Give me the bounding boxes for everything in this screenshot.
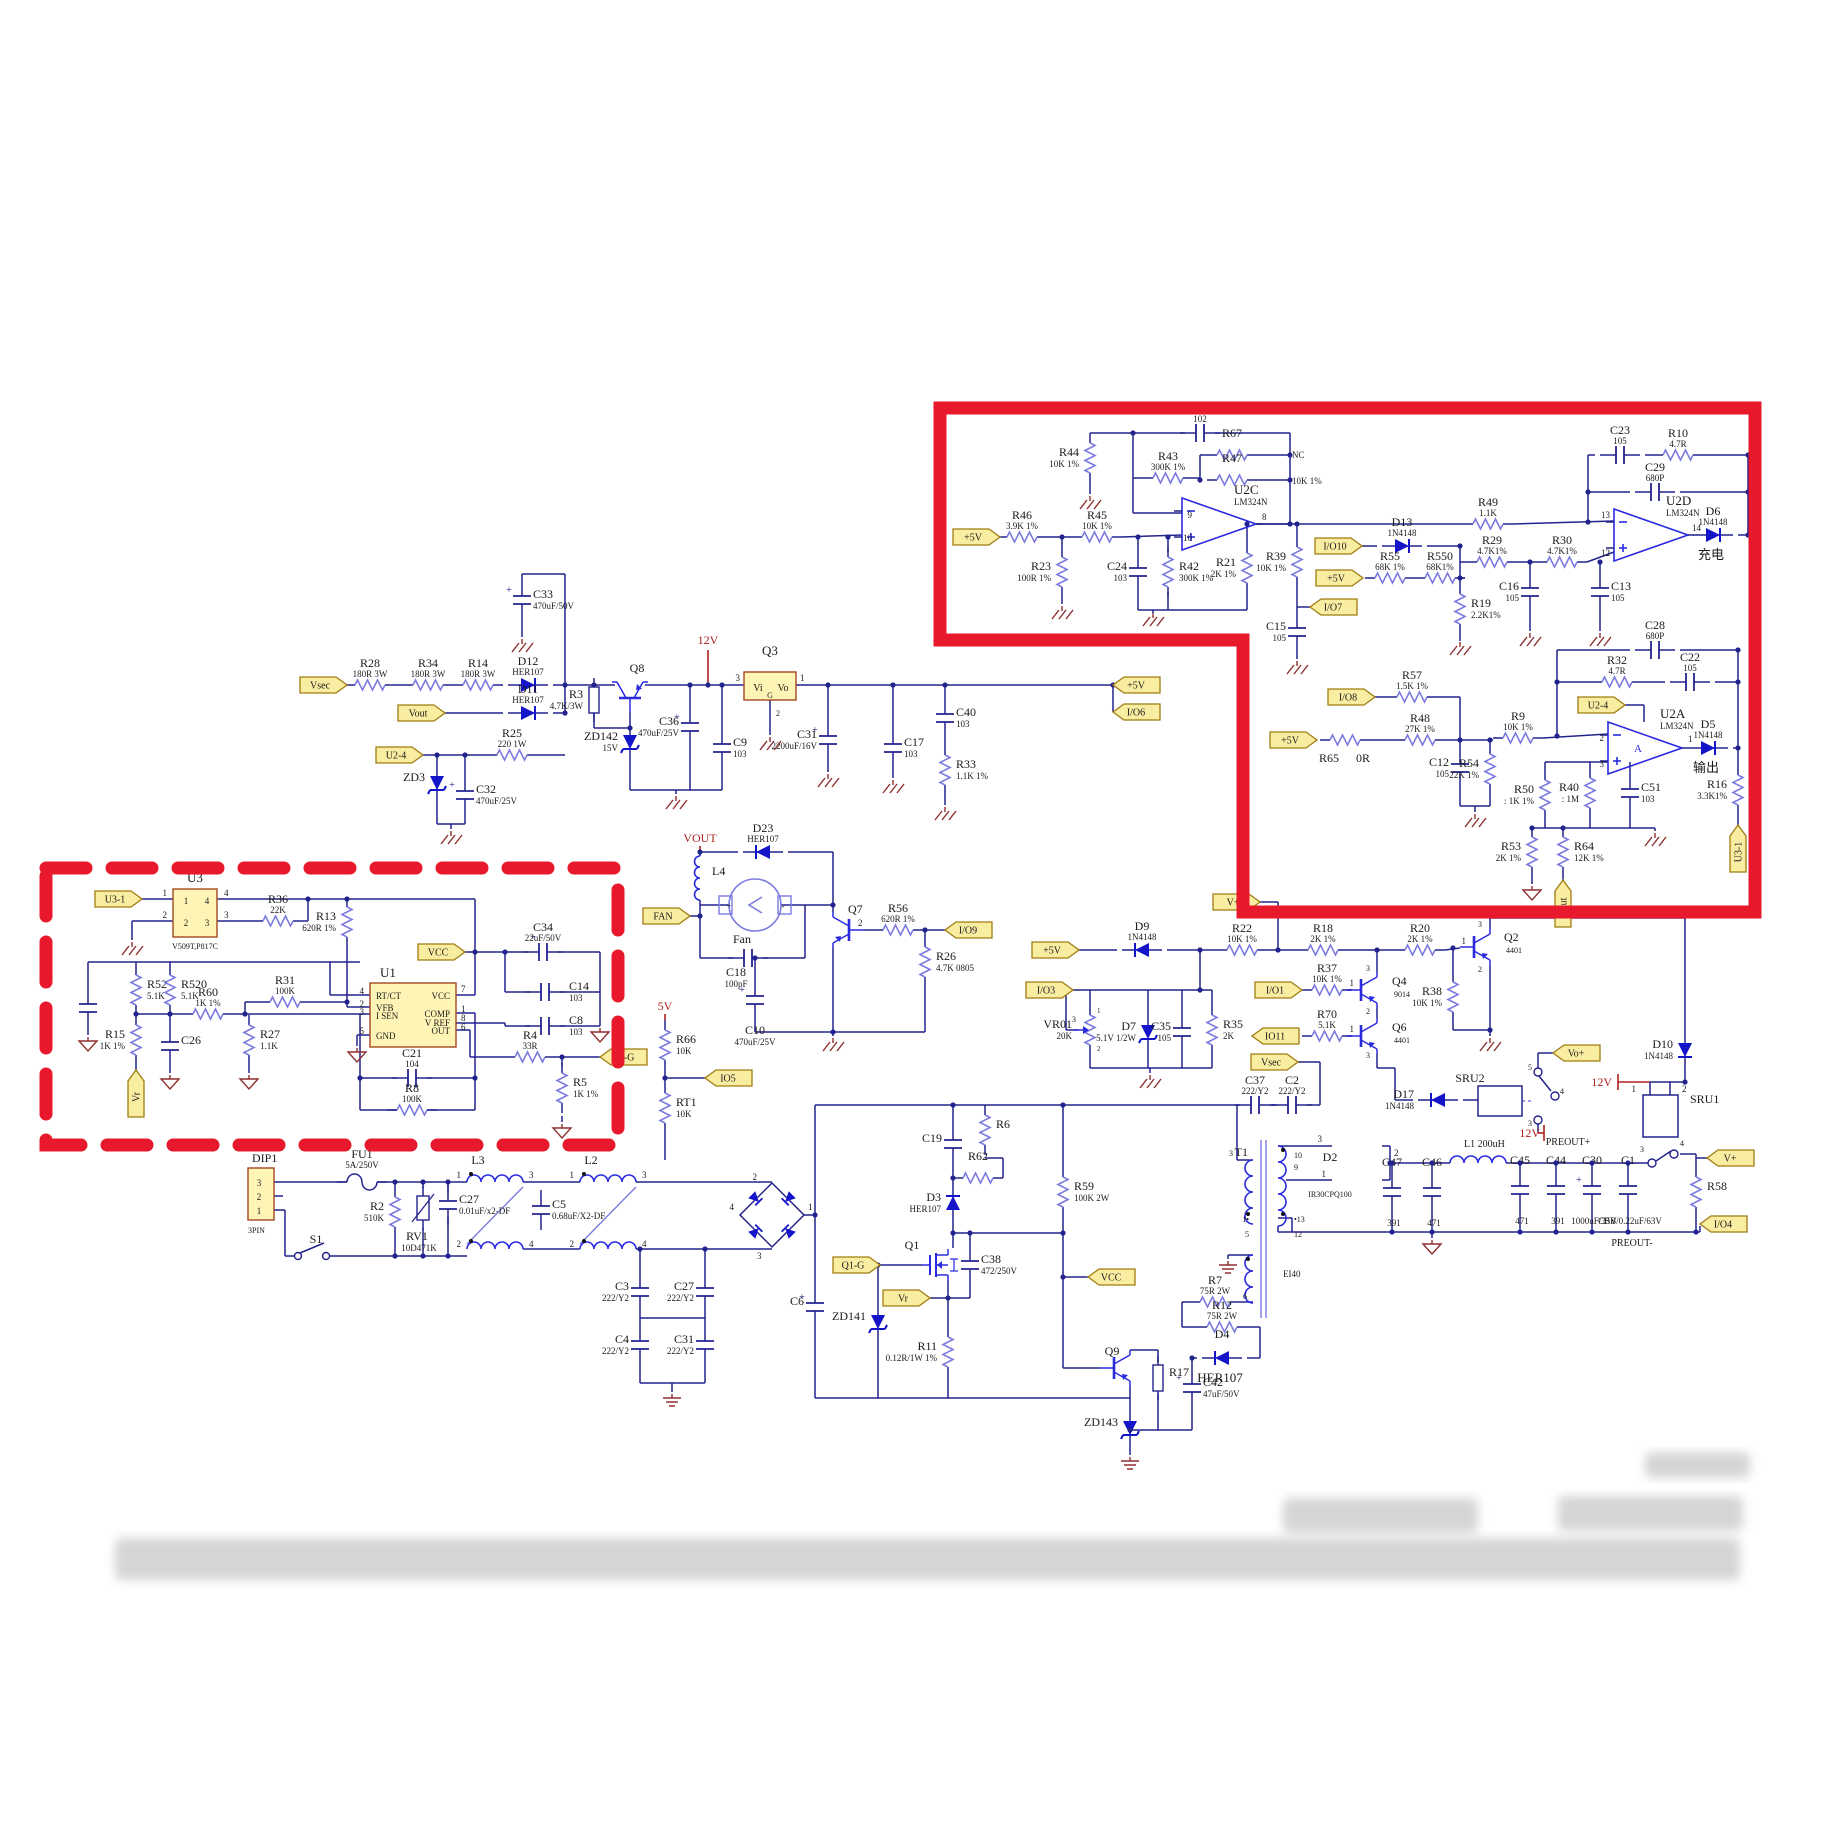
component-C36: +C36470uF/25V <box>638 707 699 747</box>
label: R49 <box>1478 495 1498 509</box>
label: 2K 1% <box>1310 934 1336 944</box>
contact-pin <box>1534 1116 1542 1124</box>
label: R59 <box>1074 1179 1094 1193</box>
label: D4 <box>1215 1327 1230 1341</box>
label: Q4 <box>1392 974 1407 988</box>
component-C38: C38472/250V <box>961 1245 1018 1285</box>
label: EI40 <box>1283 1269 1301 1279</box>
component-ZD141: ZD141 <box>832 1302 887 1342</box>
component-C22: C22105 <box>1670 650 1710 691</box>
label: 103 <box>569 993 583 1003</box>
label: 2200uF/16V <box>771 741 817 751</box>
label: C5 <box>552 1197 566 1211</box>
label: 4 <box>1680 1139 1684 1148</box>
label: 100R 1% <box>1017 573 1051 583</box>
label: U2-4 <box>386 751 407 762</box>
label: + <box>726 901 731 911</box>
label: R53 <box>1501 839 1521 853</box>
component-R4: R433R <box>505 1028 555 1062</box>
label: 1 <box>570 1170 575 1180</box>
inductor-coil <box>467 1175 523 1182</box>
schematic-canvas: R4410K 1%R463.9K 1%R4510K 1%R43300K 1%R6… <box>0 0 1825 1825</box>
component-C2: C2222/Y2 <box>1272 1073 1312 1114</box>
component-C27: C270.01uF/x2-DF <box>439 1185 510 1225</box>
component-C16: C16105 <box>1499 572 1539 612</box>
label: R47 <box>1222 451 1242 465</box>
label: 5.1K <box>1318 1020 1336 1030</box>
label: FAN <box>653 912 672 923</box>
component-C32: +C32470uF/25V <box>449 775 517 815</box>
label: C21 <box>402 1046 422 1060</box>
label: R35 <box>1223 1017 1243 1031</box>
component-C51: C51103 <box>1621 773 1661 813</box>
component-R32: R324.7R <box>1592 653 1642 687</box>
label: R27 <box>260 1027 280 1041</box>
label: 2 <box>753 1172 758 1182</box>
power-label-12V: 12V <box>1519 1126 1540 1140</box>
net-flag-+5V: +5V <box>1032 942 1079 958</box>
net-flag-I/O7: I/O7 <box>1310 599 1357 615</box>
component-C24: C24103 <box>1107 552 1147 592</box>
label: R62 <box>968 1149 988 1163</box>
label: R65 <box>1319 751 1339 765</box>
label: D23 <box>753 821 774 835</box>
label: + <box>1176 1373 1182 1384</box>
label: C4 <box>615 1332 629 1346</box>
label: 2.2K1% <box>1471 610 1501 620</box>
component-transistor <box>612 682 648 712</box>
label: 12K 1% <box>1574 853 1604 863</box>
contact-pin <box>1534 1068 1542 1076</box>
label: 4 <box>529 1239 534 1249</box>
label: 0.01uF/x2-DF <box>459 1206 510 1216</box>
label: R40 <box>1559 780 1579 794</box>
label: 105 <box>1683 663 1697 673</box>
label: D9 <box>1135 919 1150 933</box>
label: 68K1% <box>1426 562 1454 572</box>
label: 0.12R/1W 1% <box>886 1353 938 1363</box>
label: 10 <box>1294 1151 1302 1160</box>
label: C27 <box>674 1279 694 1293</box>
label: VCC <box>428 948 449 959</box>
label: R70 <box>1317 1007 1337 1021</box>
component-transistor <box>1460 929 1490 965</box>
component-R25: R25220 1W <box>487 726 537 760</box>
component-R28: R28180R 3W <box>345 656 395 690</box>
label: D5 <box>1701 717 1716 731</box>
label: T1 <box>1235 1145 1248 1159</box>
net-flag-+5V: +5V <box>1316 570 1363 586</box>
label: C34 <box>533 920 553 934</box>
label: 0.68uF/X2-DF <box>552 1211 605 1221</box>
label: D11 <box>518 682 538 696</box>
component-C19: C19 <box>922 1124 962 1164</box>
label: I SEN <box>376 1011 399 1021</box>
label: 10 <box>1183 533 1193 543</box>
label: 470uF/25V <box>734 1037 776 1047</box>
label: HER107 <box>1197 1370 1243 1385</box>
label: D13 <box>1392 515 1413 529</box>
net-flag-I/O8: I/O8 <box>1328 689 1375 705</box>
component-R35: R352K <box>1207 1005 1243 1055</box>
label: C16 <box>1499 579 1519 593</box>
component-R17: R17 <box>1153 1356 1189 1400</box>
label: Vr <box>898 1294 909 1305</box>
label: 300K 1% <box>1151 462 1186 472</box>
component-R14: R14180R 3W <box>453 656 503 690</box>
label: +5V <box>964 533 983 544</box>
label: 5 <box>1528 1063 1532 1072</box>
component-R9: R910K 1% <box>1493 709 1543 743</box>
label: L4 <box>712 864 725 878</box>
component-R46: R463.9K 1% <box>997 508 1047 542</box>
label: R42 <box>1179 559 1199 573</box>
bridge-rectifier <box>740 1183 804 1247</box>
label: Q6 <box>1392 1020 1407 1034</box>
label: ZD142 <box>584 729 618 743</box>
component-R19: R192.2K1% <box>1455 584 1501 634</box>
label: 105 <box>1273 633 1287 643</box>
component-R53: R532K 1% <box>1496 827 1537 877</box>
label: 22K <box>270 905 286 915</box>
component-R21: R212K 1% <box>1211 543 1252 593</box>
component-R33: R331.1K 1% <box>940 745 988 795</box>
power-label-12V: 12V <box>1591 1075 1612 1089</box>
label: C33 <box>533 587 553 601</box>
label: R2 <box>370 1199 384 1213</box>
label: 3 <box>224 910 229 920</box>
component-FU1: FU15A/250V <box>337 1147 387 1190</box>
label: CBB/0.22uF/63V <box>1598 1216 1662 1226</box>
label: 103 <box>904 749 918 759</box>
label: 4 <box>360 986 365 996</box>
label: 470uF/25V <box>476 796 518 806</box>
net-flag-IO11: IO11 <box>1252 1028 1299 1044</box>
net-flag-Vo+: Vo+ <box>1553 1045 1600 1061</box>
label: 5.1V 1/2W <box>1096 1033 1136 1043</box>
inductor-coil <box>580 1175 636 1182</box>
label: HER107 <box>512 667 544 677</box>
label: D3 <box>926 1190 941 1204</box>
component-R47: R47 <box>1207 451 1257 485</box>
label: Vout <box>409 709 428 720</box>
component-RV1: RV110D471K <box>401 1186 437 1253</box>
label: 1 <box>1097 1007 1101 1015</box>
label: 47uF/50V <box>1203 1389 1240 1399</box>
net-flag-U3-1: U3-1 <box>1730 825 1746 872</box>
label: 33R <box>522 1041 537 1051</box>
label: I/O10 <box>1323 542 1346 553</box>
net-flag-I/O3: I/O3 <box>1026 982 1073 998</box>
net-flag-Vout: Vout <box>398 705 445 721</box>
label: C18 <box>726 965 746 979</box>
label: 222/Y2 <box>602 1346 629 1356</box>
label: R23 <box>1031 559 1051 573</box>
label: 103 <box>956 719 970 729</box>
label: 100K 2W <box>1074 1193 1110 1203</box>
label: VCC <box>431 991 450 1001</box>
component-C31: +C312200uF/16V <box>771 720 837 760</box>
label: C6 <box>790 1294 804 1308</box>
label: GND <box>376 1031 396 1041</box>
label: Vo+ <box>1568 1049 1585 1060</box>
label: 27K 1% <box>1405 724 1435 734</box>
label: 103 <box>1114 573 1128 583</box>
label: R16 <box>1707 777 1727 791</box>
label: Fan <box>733 932 751 946</box>
power-label-VOUT: VOUT <box>683 831 717 845</box>
label: 3 <box>529 1170 534 1180</box>
label: 180R 3W <box>461 669 496 679</box>
component-R37: R3710K 1% <box>1302 961 1352 995</box>
contact-pin <box>1551 1092 1559 1100</box>
label: R45 <box>1087 508 1107 522</box>
net-flag-I/O9: I/O9 <box>945 922 992 938</box>
label: DIP1 <box>252 1151 277 1165</box>
label: 7 <box>461 984 466 994</box>
label: 22uF/50V <box>525 933 562 943</box>
component-R55: R5568K 1% <box>1365 549 1415 583</box>
label: 3 <box>360 1007 365 1017</box>
label: R4 <box>523 1028 537 1042</box>
label: V509T,P817C <box>172 942 218 951</box>
label: 10K <box>676 1046 692 1056</box>
label: 222/Y2 <box>667 1293 694 1303</box>
label: 12V <box>1519 1126 1540 1140</box>
component-RT1: RT110K <box>660 1083 697 1133</box>
component-R62: R62 <box>953 1149 1003 1183</box>
label: 1 <box>257 1206 262 1216</box>
component-D4: D4HER107 <box>1197 1327 1243 1385</box>
label: 10D471K <box>401 1243 437 1253</box>
label: R50 <box>1514 782 1534 796</box>
label: 9014 <box>1394 990 1410 999</box>
component-R40: R40: 1M <box>1559 768 1595 818</box>
net-flag-IO5: IO5 <box>705 1070 752 1086</box>
label: 8 <box>1262 512 1267 522</box>
label: R43 <box>1158 449 1178 463</box>
label: 输出 <box>1693 760 1719 775</box>
component-R66: R6610K <box>660 1020 696 1070</box>
component-D7: D75.1V 1/2W <box>1096 1012 1157 1052</box>
label: C27 <box>459 1192 479 1206</box>
label: 5 <box>1245 1230 1249 1239</box>
label: R44 <box>1059 445 1079 459</box>
component-R43: R43300K 1% <box>1143 449 1193 483</box>
component-R2: R2510K <box>364 1187 400 1237</box>
blur-overlays <box>115 1452 1750 1580</box>
label: 105 <box>1613 436 1627 446</box>
label: Q7 <box>848 902 863 916</box>
label: 2 <box>257 1192 262 1202</box>
net-flag-Q1-G: Q1-G <box>833 1257 880 1273</box>
net-flag-+5V: +5V <box>1113 677 1160 693</box>
label: 12V <box>698 633 719 647</box>
label: 10K 1% <box>1412 998 1442 1008</box>
label: 3 <box>1600 759 1605 769</box>
label: 471 <box>1427 1218 1441 1228</box>
label: U3-1 <box>1734 842 1745 863</box>
label: 1.5K 1% <box>1396 681 1428 691</box>
component-R38: R3810K 1% <box>1412 972 1458 1022</box>
component-R57: R571.5K 1% <box>1387 668 1437 702</box>
power-label-5V: 5V <box>658 999 673 1013</box>
label: 3 <box>205 918 210 928</box>
label: LM324N <box>1234 497 1268 507</box>
label: 510K <box>364 1213 385 1223</box>
label: I/O8 <box>1339 693 1357 704</box>
label: C24 <box>1107 559 1127 573</box>
label: R5 <box>573 1075 587 1089</box>
net-flag-Vsec: Vsec <box>300 677 347 693</box>
label: 4 <box>224 888 229 898</box>
label: I/O9 <box>959 926 977 937</box>
label: D7 <box>1121 1019 1136 1033</box>
label: 10K 1% <box>1503 722 1533 732</box>
label: R550 <box>1427 549 1453 563</box>
label: R54 <box>1459 756 1479 770</box>
label: 13 <box>1601 510 1611 520</box>
label: 5.1K <box>147 991 165 1001</box>
label: 1K 1% <box>100 1041 126 1051</box>
label: 充电 <box>1698 547 1724 562</box>
label: 180R 3W <box>353 669 388 679</box>
label: C36 <box>659 714 679 728</box>
label: R48 <box>1410 711 1430 725</box>
label: 9 <box>1294 1163 1298 1172</box>
label: R3 <box>569 687 583 701</box>
label: RT/CT <box>376 991 401 1001</box>
label: 1 <box>808 1202 813 1212</box>
label: R8 <box>405 1081 419 1095</box>
label: 2 <box>1366 1007 1370 1016</box>
component-C23: C23105 <box>1600 423 1640 464</box>
label: R32 <box>1607 653 1627 667</box>
label: 10K <box>676 1109 692 1119</box>
net-flag-U2-4: U2-4 <box>1578 697 1625 713</box>
label: LM324N <box>1660 721 1694 731</box>
label: R20 <box>1410 921 1430 935</box>
label: 1 <box>184 896 189 906</box>
label: R15 <box>105 1027 125 1041</box>
label: ZD3 <box>403 770 425 784</box>
component-R31: R31100K <box>260 973 310 1007</box>
label: 222/Y2 <box>1279 1086 1306 1096</box>
label: 2 <box>163 910 168 920</box>
label: RT1 <box>676 1095 697 1109</box>
component-R49: R491.1K <box>1463 495 1513 529</box>
label: 3 <box>1318 1134 1323 1144</box>
label: R28 <box>360 656 380 670</box>
label: 300K 1% <box>1179 573 1214 583</box>
label: VOUT <box>683 831 717 845</box>
component-C13: C13105 <box>1591 572 1631 612</box>
label: 2K 1% <box>1211 569 1237 579</box>
component-R26: R264.7K 0805 <box>920 937 974 987</box>
label: 12V <box>1591 1075 1612 1089</box>
label: 222/Y2 <box>602 1293 629 1303</box>
component-R20: R202K 1% <box>1395 921 1445 955</box>
label: R31 <box>275 973 295 987</box>
label: U1 <box>380 965 396 980</box>
label: 1 <box>800 673 805 683</box>
component-C35: C35105 <box>1151 1012 1191 1052</box>
label: I/O6 <box>1127 708 1145 719</box>
label: C35 <box>1151 1019 1171 1033</box>
component-C10: +C10470uF/25V <box>734 980 776 1047</box>
component-C18: C18100pF <box>724 949 768 989</box>
label: 6 <box>461 1022 466 1032</box>
label: 680P <box>1646 631 1665 641</box>
label: 3PIN <box>248 1226 265 1235</box>
label: 75R 2W <box>1207 1311 1238 1321</box>
label: 1N4148 <box>1644 1051 1673 1061</box>
label: 3 <box>1366 1051 1370 1060</box>
label: 1K 1% <box>573 1089 599 1099</box>
net-flag-I/O1: I/O1 <box>1255 982 1302 998</box>
label: IO5 <box>720 1074 736 1085</box>
label: 1N4148 <box>1385 1101 1414 1111</box>
label: U2D <box>1666 493 1691 508</box>
label: HER107 <box>910 1204 942 1214</box>
label: C2 <box>1285 1073 1299 1087</box>
label: Q2 <box>1504 930 1519 944</box>
label: 0R <box>1356 751 1370 765</box>
label: 1K 1% <box>195 998 221 1008</box>
label: 103 <box>569 1027 583 1037</box>
component-R18: R182K 1% <box>1298 921 1348 955</box>
label: 1.1K 1% <box>956 771 988 781</box>
label: 4.7K1% <box>1477 546 1507 556</box>
label: R18 <box>1313 921 1333 935</box>
label: C10 <box>745 1023 765 1037</box>
label: R39 <box>1266 549 1286 563</box>
label: R52 <box>147 977 167 991</box>
label: C8 <box>569 1013 583 1027</box>
component-C5: C50.68uF/X2-DF <box>532 1190 605 1230</box>
label: C26 <box>181 1033 201 1047</box>
label: D6 <box>1706 504 1721 518</box>
net-flag-FAN: FAN <box>643 908 690 924</box>
schematic-svg: R4410K 1%R463.9K 1%R4510K 1%R43300K 1%R6… <box>0 0 1825 1825</box>
label: 2 <box>184 918 189 928</box>
component-R58: R58 <box>1691 1167 1727 1217</box>
label: 2K 1% <box>1407 934 1433 944</box>
label: C9 <box>733 735 747 749</box>
label: Q3 <box>762 643 778 658</box>
label: L1 200uH <box>1464 1139 1505 1150</box>
net-flag-I/O10: I/O10 <box>1315 538 1362 554</box>
label: R56 <box>888 901 908 915</box>
component-C34: +C3422uF/50V <box>523 920 563 961</box>
component-R29: R294.7K1% <box>1467 533 1517 567</box>
label: 1 <box>1350 978 1355 988</box>
net-flag-Vr: Vr <box>128 1070 144 1117</box>
label: R37 <box>1317 961 1337 975</box>
relay-box <box>1643 1095 1678 1137</box>
label: 1.1K <box>260 1041 278 1051</box>
component-C17: C17103 <box>884 728 924 768</box>
label: C28 <box>1645 618 1665 632</box>
label: R10 <box>1668 426 1688 440</box>
label: 100K <box>275 986 296 996</box>
component-C3: C3222/Y2 <box>602 1272 649 1312</box>
label: 3 <box>1072 1015 1076 1024</box>
component-VR01: VR0120K <box>1043 1008 1095 1052</box>
component-D23: D23HER107 <box>743 821 783 859</box>
label: +5V <box>1281 736 1300 747</box>
component-R30: R304.7K1% <box>1537 533 1587 567</box>
